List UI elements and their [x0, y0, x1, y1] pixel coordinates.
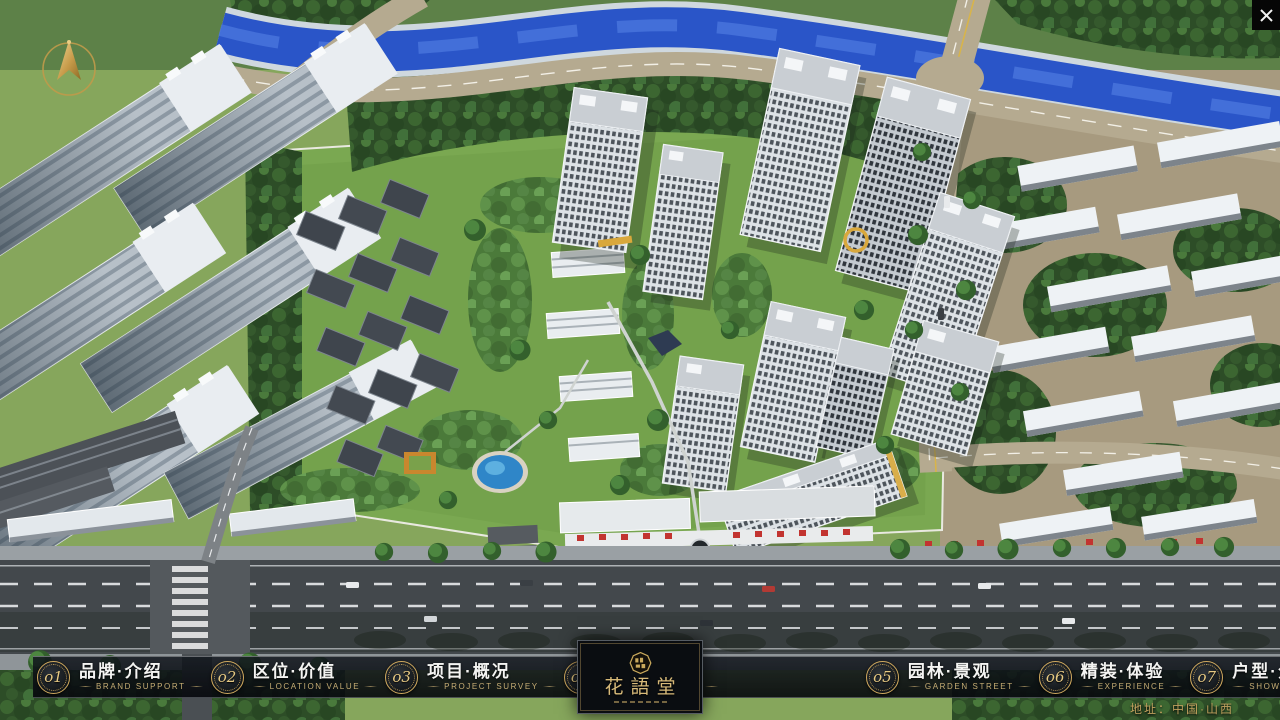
rule-right [1169, 686, 1182, 687]
nav-item-project[interactable]: o3 项目·概况 PROJECT SURVEY [381, 657, 560, 697]
nav-badge-number: o3 [392, 668, 411, 686]
nav-sublabel: EXPERIENCE [1098, 682, 1166, 691]
rule-left [253, 686, 266, 687]
logo-subtitle-decor [614, 701, 667, 703]
nav-sublabel: BRAND SUPPORT [96, 682, 186, 691]
navbar-logo-gap [722, 657, 862, 697]
seal-icon [628, 651, 653, 676]
nav-item-location[interactable]: o2 区位·价值 LOCATION VALUE [207, 657, 382, 697]
nav-badge: o5 [866, 661, 899, 694]
nav-badge-number: o6 [1046, 668, 1065, 686]
nav-badge-number: o2 [218, 668, 237, 686]
nav-item-floorplan[interactable]: o7 户型·分布 SHOW ROOM [1186, 657, 1280, 697]
presentation-window: o1 品牌·介绍 BRAND SUPPORT o2 区位·价值 LOCATION… [0, 0, 1280, 720]
nav-badge: o1 [37, 661, 70, 694]
logo-home-button[interactable]: 花語堂 [577, 640, 703, 714]
rule-right [543, 686, 556, 687]
close-button[interactable] [1252, 0, 1280, 30]
nav-label: 园林·景观 [908, 663, 1031, 681]
nav-item-landscape[interactable]: o5 园林·景观 GARDEN STREET [862, 657, 1035, 697]
close-icon [1259, 8, 1274, 23]
nav-sublabel: GARDEN STREET [925, 682, 1014, 691]
nav-badge-number: o5 [873, 668, 892, 686]
nav-label: 区位·价值 [253, 663, 378, 681]
rule-left [427, 686, 440, 687]
nav-label: 项目·概况 [427, 663, 556, 681]
nav-badge: o2 [211, 661, 244, 694]
nav-item-interior[interactable]: o6 精装·体验 EXPERIENCE [1035, 657, 1187, 697]
rule-left [908, 686, 921, 687]
nav-badge-number: o7 [1198, 668, 1217, 686]
nav-sublabel: PROJECT SURVEY [444, 682, 539, 691]
nav-badge: o7 [1190, 661, 1223, 694]
rule-left [1232, 686, 1245, 687]
address-label: 地址：中国·山西 [1130, 700, 1234, 717]
nav-item-brand[interactable]: o1 品牌·介绍 BRAND SUPPORT [33, 657, 207, 697]
nav-label: 品牌·介绍 [79, 663, 203, 681]
rule-left [79, 686, 92, 687]
compass-icon [36, 34, 102, 100]
nav-label: 户型·分布 [1232, 663, 1280, 681]
rule-right [364, 686, 377, 687]
nav-label: 精装·体验 [1081, 663, 1183, 681]
masterplan-render [0, 0, 1280, 720]
navbar-right-group: o5 园林·景观 GARDEN STREET o6 精装·体验 EXPERIEN… [862, 657, 1280, 697]
rule-right [705, 686, 718, 687]
rule-right [190, 686, 203, 687]
nav-badge-number: o1 [44, 668, 63, 686]
rule-left [1081, 686, 1094, 687]
nav-sublabel: LOCATION VALUE [270, 682, 361, 691]
nav-sublabel: SHOW ROOM [1249, 682, 1280, 691]
nav-badge: o3 [385, 661, 418, 694]
nav-badge: o6 [1039, 661, 1072, 694]
rule-right [1018, 686, 1031, 687]
logo-name: 花語堂 [604, 677, 682, 698]
